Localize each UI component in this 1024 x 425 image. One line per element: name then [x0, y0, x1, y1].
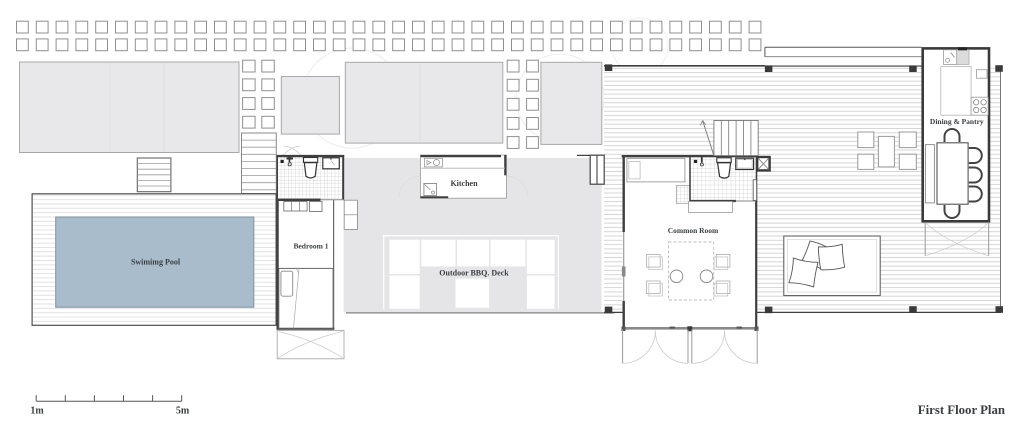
svg-text:5m: 5m	[176, 406, 190, 417]
svg-text:1m: 1m	[30, 406, 44, 417]
svg-text:Swimimg Pool: Swimimg Pool	[131, 258, 181, 267]
svg-text:First Floor Plan: First Floor Plan	[918, 403, 1005, 417]
svg-text:Outdoor BBQ. Deck: Outdoor BBQ. Deck	[439, 268, 509, 277]
svg-text:Kitchen: Kitchen	[450, 179, 478, 188]
svg-text:Common Room: Common Room	[668, 226, 719, 235]
svg-text:Bedroom 1: Bedroom 1	[293, 242, 328, 251]
svg-text:Dining & Pantry: Dining & Pantry	[930, 117, 984, 126]
